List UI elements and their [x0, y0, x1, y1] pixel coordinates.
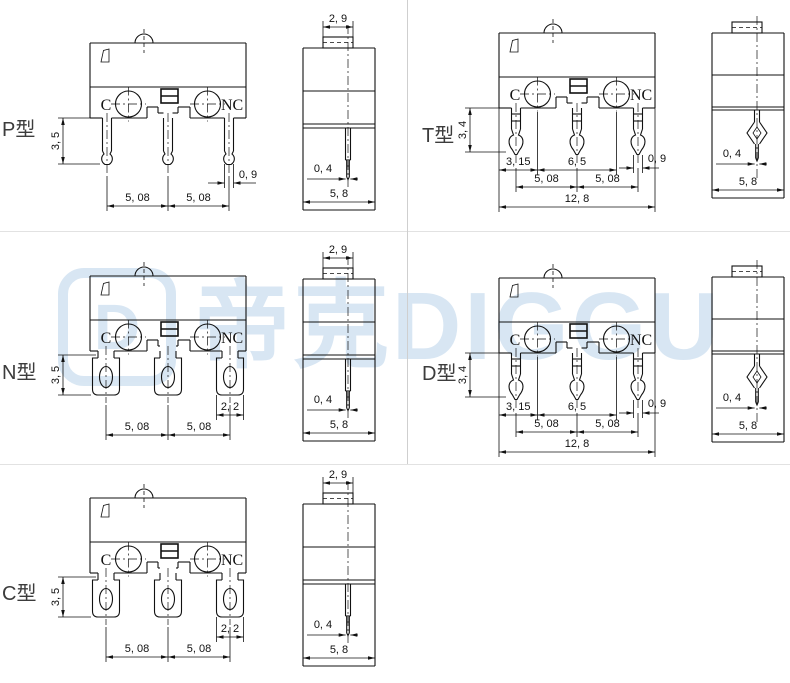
- terminal-label: C: [101, 97, 112, 114]
- dim-label: 3, 5: [50, 588, 62, 606]
- terminal-label: NC: [221, 330, 243, 347]
- dim-label: 5, 08: [125, 643, 149, 655]
- panel-t-drawing: CNC3, 43, 156, 50, 95, 085, 0812, 80, 45…: [410, 0, 790, 231]
- dim-label: 5, 08: [534, 418, 558, 430]
- panel-t-label: T型: [422, 126, 454, 146]
- panel-d-drawing: CNC3, 43, 156, 50, 95, 085, 0812, 80, 45…: [410, 231, 790, 464]
- terminal-label: C: [510, 332, 521, 349]
- dim-label: 0, 9: [648, 398, 666, 410]
- panel-n-drawing: CNC3, 52, 25, 085, 082, 90, 45, 8: [0, 231, 410, 464]
- dim-label: 5, 8: [330, 188, 348, 200]
- dim-label: 5, 08: [187, 643, 211, 655]
- dim-label: 3, 15: [506, 156, 530, 168]
- dim-label: 12, 8: [565, 438, 589, 450]
- panel-c-label: C型: [2, 584, 36, 604]
- terminal-label: NC: [630, 332, 652, 349]
- terminal-label: NC: [630, 87, 652, 104]
- terminal-label: C: [510, 87, 521, 104]
- dim-label: 5, 8: [739, 420, 757, 432]
- dim-label: 0, 4: [314, 619, 332, 631]
- panel-p-label: P型: [2, 120, 35, 140]
- terminal-label: C: [101, 552, 112, 569]
- dim-label: 3, 4: [457, 366, 469, 384]
- dim-label: 5, 08: [595, 418, 619, 430]
- panel-c-drawing: CNC3, 52, 25, 085, 082, 90, 45, 8: [0, 464, 410, 683]
- front-view: CNC3, 43, 156, 50, 95, 085, 0812, 8: [457, 264, 666, 457]
- side-view: 2, 90, 45, 8: [303, 13, 375, 210]
- panel-d-label: D型: [422, 364, 456, 384]
- front-view: CNC3, 55, 085, 080, 9: [50, 29, 257, 211]
- dim-label: 2, 9: [329, 13, 347, 25]
- drawing-sheet: D 帝克DIGGU CNC3, 55, 085, 080, 92, 90, 45…: [0, 0, 790, 683]
- dim-label: 5, 08: [186, 192, 210, 204]
- dim-label: 3, 4: [457, 121, 469, 139]
- dim-label: 2, 9: [329, 244, 347, 256]
- dim-label: 5, 08: [595, 173, 619, 185]
- dim-label: 5, 08: [534, 173, 558, 185]
- side-view: 2, 90, 45, 8: [303, 244, 375, 441]
- side-view: 2, 90, 45, 8: [303, 469, 375, 666]
- dim-label: 3, 15: [506, 401, 530, 413]
- dim-label: 3, 5: [50, 366, 62, 384]
- terminal-label: C: [101, 330, 112, 347]
- dim-label: 0, 4: [314, 163, 332, 175]
- terminal-label: NC: [221, 97, 243, 114]
- dim-label: 0, 4: [723, 392, 741, 404]
- dim-label: 0, 4: [723, 148, 741, 160]
- terminal-label: NC: [221, 552, 243, 569]
- dim-label: 0, 4: [314, 394, 332, 406]
- dim-label: 0, 9: [648, 153, 666, 165]
- front-view: CNC3, 52, 25, 085, 08: [50, 484, 246, 662]
- dim-label: 5, 8: [739, 176, 757, 188]
- dim-label: 5, 8: [330, 644, 348, 656]
- dim-label: 5, 8: [330, 419, 348, 431]
- dim-label: 6, 5: [568, 156, 586, 168]
- dim-label: 5, 08: [125, 421, 149, 433]
- dim-label: 5, 08: [187, 421, 211, 433]
- dim-label: 12, 8: [565, 193, 589, 205]
- front-view: CNC3, 43, 156, 50, 95, 085, 0812, 8: [457, 19, 666, 212]
- front-view: CNC3, 52, 25, 085, 08: [50, 262, 246, 440]
- side-view: 0, 45, 8: [712, 260, 784, 442]
- side-view: 0, 45, 8: [712, 16, 784, 198]
- dim-label: 3, 5: [50, 132, 62, 150]
- panel-p-drawing: CNC3, 55, 085, 080, 92, 90, 45, 8: [0, 0, 410, 231]
- dim-label: 5, 08: [125, 192, 149, 204]
- dim-label: 0, 9: [239, 169, 257, 181]
- panel-n-label: N型: [2, 363, 36, 383]
- dim-label: 6, 5: [568, 401, 586, 413]
- dim-label: 2, 9: [329, 469, 347, 481]
